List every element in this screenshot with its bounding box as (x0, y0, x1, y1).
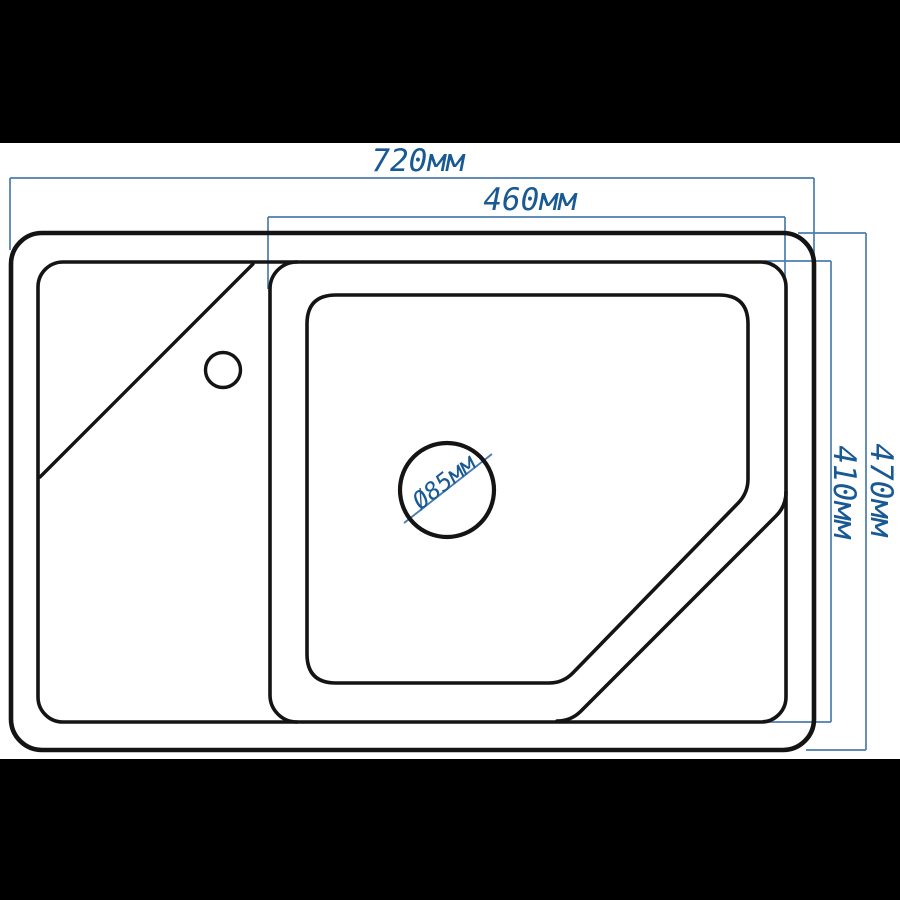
bowl-outline (307, 295, 748, 683)
bowl-chamfer-line (557, 492, 786, 721)
dim-label-overall-depth: 470мм (865, 395, 897, 585)
dim-label-overall-width: 720мм (323, 145, 513, 177)
dim-label-bowl-width: 460мм (435, 184, 625, 216)
bowl-ledge-contour (270, 262, 297, 722)
sink-line-art (0, 0, 900, 900)
sink-dimension-drawing: 720мм 460мм 470мм 410мм Ø85мм (0, 0, 900, 900)
dim-label-bowl-depth: 410мм (828, 397, 860, 587)
tap-hole-circle (206, 353, 241, 388)
drainboard-diagonal-line (40, 264, 253, 477)
